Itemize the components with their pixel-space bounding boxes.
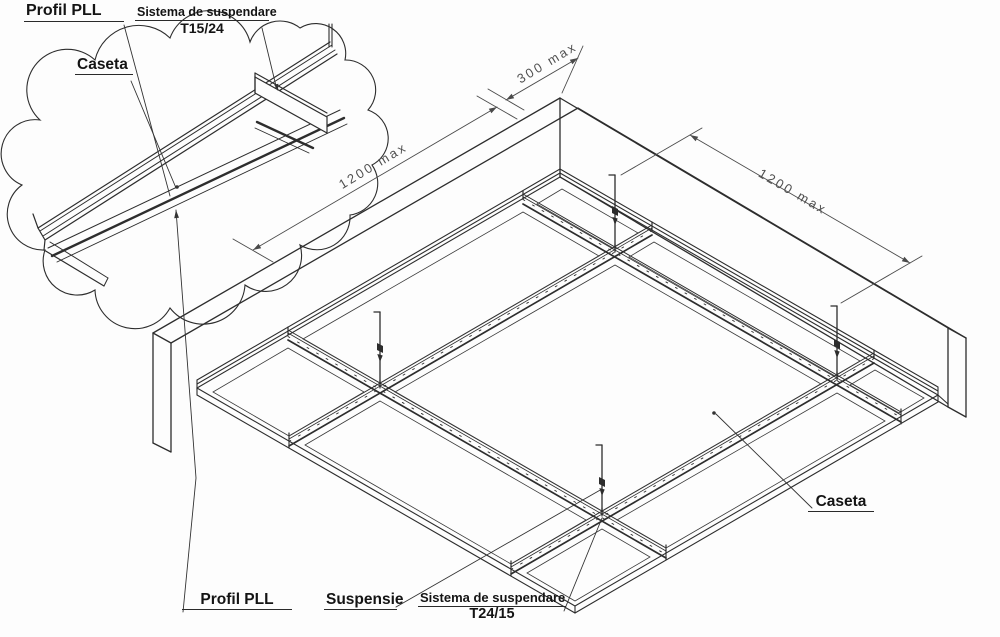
main-runner-1	[288, 327, 666, 558]
suspension-rod-3	[831, 306, 840, 378]
label-suspensie-text: Suspensie	[324, 592, 397, 610]
label-profil-pll-top-text: Profil PLL	[24, 3, 124, 22]
label-caseta-right: Caseta	[808, 494, 874, 512]
label-sistema-top-line1: Sistema de suspendare	[135, 6, 269, 21]
right-wall	[560, 98, 966, 417]
label-caseta-top-text: Caseta	[75, 57, 133, 75]
suspension-rod-1	[609, 175, 618, 249]
label-profil-pll-top: Profil PLL	[24, 3, 124, 22]
label-caseta-top: Caseta	[75, 57, 133, 75]
label-caseta-right-text: Caseta	[808, 494, 874, 512]
label-sistema-bottom-line1: Sistema de suspendare	[418, 591, 566, 607]
main-runner-2	[523, 191, 901, 422]
label-profil-pll-bottom-text: Profil PLL	[182, 592, 292, 610]
label-profil-pll-bottom: Profil PLL	[182, 592, 292, 610]
label-sistema-bottom-line2: T24/15	[418, 607, 566, 622]
wall-angle-profile-detail	[33, 42, 347, 286]
label-suspensie: Suspensie	[324, 592, 397, 610]
detail-leader-lines	[124, 25, 278, 196]
technical-line-art	[0, 0, 1000, 637]
suspension-rod-2	[374, 312, 383, 386]
ceiling-system-diagram: Profil PLL Sistema de suspendare T15/24 …	[0, 0, 1000, 637]
perimeter-wall-angle	[197, 169, 948, 404]
dimension-left-1200	[233, 96, 517, 262]
suspension-rod-4	[596, 445, 605, 514]
tee-profile-detail	[255, 24, 332, 153]
label-sistema-suspendare-bottom: Sistema de suspendare T24/15	[418, 591, 566, 622]
label-sistema-top-line2: T15/24	[135, 21, 269, 36]
label-sistema-suspendare-top: Sistema de suspendare T15/24	[135, 6, 269, 36]
